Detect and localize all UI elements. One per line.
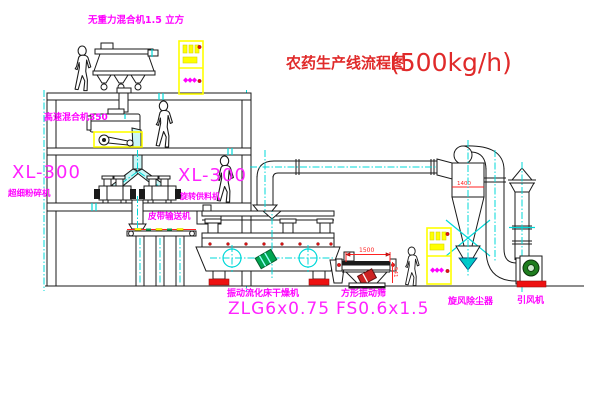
control-cabinet-1: ◆◆◆ [179, 41, 203, 94]
exhaust-duct [253, 150, 282, 213]
floor-slab-2 [47, 148, 251, 155]
main-duct [250, 159, 456, 180]
person-icon [75, 46, 91, 91]
belt-conveyor [127, 229, 196, 287]
cabinet-indicator: ◆◆◆ [183, 76, 198, 84]
label-mill-model: XL-300 [12, 162, 81, 183]
vibrating-sieve: 1500 541 [336, 247, 398, 288]
dryer-exhaust-ports [205, 219, 333, 233]
diagram-title: 农药生产线流程图 [285, 54, 406, 72]
label-high-speed-mixer: 高速混合机350 [44, 111, 108, 123]
person-icon [406, 247, 420, 286]
diagram-capacity: (500kg/h) [390, 48, 512, 77]
label-feeder-name: 旋转供料机 [179, 191, 220, 201]
label-mill-name: 超细粉碎机 [7, 188, 51, 199]
cad-flow-diagram: ◆◆◆ [0, 0, 600, 403]
sieve-length-dim: 1500 [359, 247, 374, 254]
down-pipe [129, 196, 146, 232]
label-belt-conveyor: 皮带输送机 [147, 211, 191, 222]
floor-slab-roof [47, 93, 251, 100]
gravity-free-mixer [93, 43, 158, 112]
label-dryer-name: 振动流化床干燥机 [227, 287, 299, 299]
person-icon [156, 101, 172, 147]
floor-slab-3 [47, 203, 251, 211]
control-cabinet-2: ◆◆◆ [427, 228, 451, 284]
label-sieve-name: 方形振动筛 [341, 287, 386, 299]
label-feeder-model: XL-300 [178, 165, 247, 186]
cyclone-downpipe [484, 150, 516, 281]
label-gravity-mixer: 无重力混合机1.5 立方 [87, 14, 185, 26]
label-sieve-model: FS0.6x1.5 [336, 299, 429, 319]
pulverizer-right [139, 176, 181, 203]
fluid-bed-dryer [196, 205, 345, 285]
induced-draft-fan [516, 256, 546, 287]
sieve-height-dim: 541 [392, 267, 398, 278]
cyclone-dimension: 1400 [457, 181, 471, 187]
label-fan: 引风机 [517, 294, 544, 306]
label-dryer-model: ZLG6x0.75 [228, 299, 330, 319]
cabinet-indicator: ◆◆◆ [430, 266, 445, 274]
label-cyclone: 旋风除尘器 [447, 295, 494, 307]
